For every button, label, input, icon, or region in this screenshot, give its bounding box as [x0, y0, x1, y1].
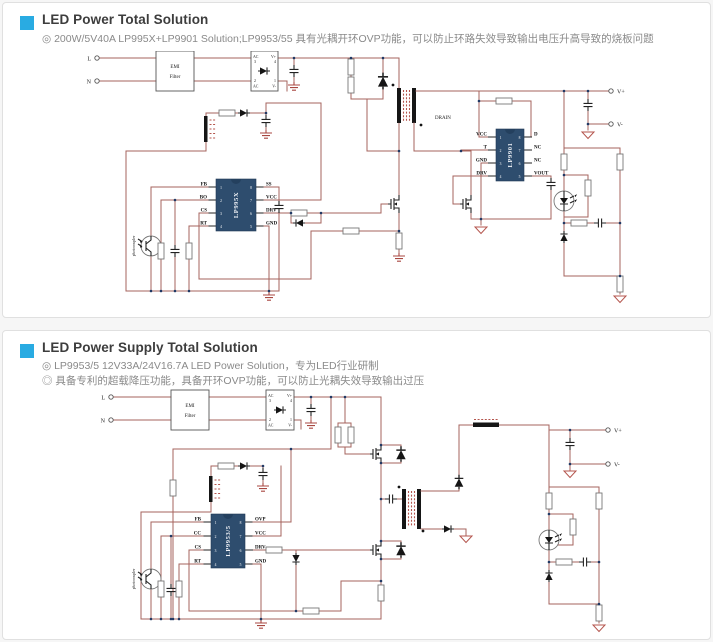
svg-text:4: 4	[500, 175, 502, 179]
svg-text:V-: V-	[288, 424, 292, 428]
svg-text:DRV: DRV	[476, 172, 487, 177]
svg-text:V+: V+	[287, 394, 292, 398]
svg-text:2: 2	[500, 149, 502, 153]
svg-text:2: 2	[215, 535, 217, 539]
p1-primary-network: photocoupler	[126, 103, 405, 300]
svg-text:8: 8	[240, 521, 242, 525]
svg-text:3: 3	[215, 549, 217, 553]
svg-text:1: 1	[220, 186, 222, 190]
svg-text:1: 1	[215, 521, 217, 525]
panel-led-power-supply-total: LED Power Supply Total Solution ◎ LP9953…	[2, 330, 711, 640]
ic-name: LP9953/5	[225, 525, 232, 556]
p1-ic-lp9901: LP9901 1 2 3 4 8 7 6 5 VCC T GND DRV D N…	[476, 129, 549, 181]
section-marker-icon	[20, 344, 34, 358]
svg-text:7: 7	[519, 149, 521, 153]
schematic-led-power-total: L N EMI Filter AC 3 V+ 4 2 AC 1 V-	[11, 51, 708, 313]
svg-text:1: 1	[500, 136, 502, 140]
svg-text:2: 2	[269, 418, 271, 422]
svg-text:V+: V+	[271, 55, 276, 59]
p2-primary-network: photocoupler	[132, 449, 381, 628]
svg-text:6: 6	[250, 212, 252, 216]
vminus-label: V-	[617, 123, 623, 129]
schematic-led-power-supply: L N EMI Filter AC 3 V+ 4 2 AC 1 V-	[11, 389, 708, 633]
panel1-bullet: ◎ 200W/5V40A LP995X+LP9901 Solution;LP99…	[42, 31, 654, 46]
ic-name: LP995X	[233, 192, 240, 218]
bridge-pin-label: AC	[253, 55, 259, 59]
svg-text:EMI: EMI	[185, 404, 195, 409]
svg-text:6: 6	[240, 549, 242, 553]
photocoupler-label: photocoupler	[132, 235, 136, 256]
svg-text:2: 2	[220, 199, 222, 203]
p1-secondary-network: DRAIN V+ V-	[414, 89, 626, 303]
svg-text:NC: NC	[534, 146, 542, 151]
panel2-bullet-1: ◎ LP9953/5 12V33A/24V16.7A LED Power Sol…	[42, 358, 379, 373]
vplus-label: V+	[614, 429, 622, 435]
svg-text:AC: AC	[268, 424, 274, 428]
section-marker-icon	[20, 16, 34, 30]
p1-transformer-snubber	[348, 58, 422, 195]
svg-text:AC: AC	[253, 85, 259, 89]
svg-text:GND: GND	[476, 159, 488, 164]
svg-text:4: 4	[274, 60, 276, 64]
svg-text:NC: NC	[534, 159, 542, 164]
panel1-title: LED Power Total Solution	[42, 12, 208, 27]
vplus-label: V+	[617, 90, 625, 96]
n-terminal-label: N	[101, 419, 106, 425]
svg-text:1: 1	[290, 418, 292, 422]
svg-text:VOUT: VOUT	[534, 172, 549, 177]
panel2-bullet-2: ◎ 具备专利的超载降压功能，具备开环OVP功能，可以防止光耦失效导致输出过压	[42, 373, 424, 388]
svg-text:D: D	[534, 133, 538, 138]
p2-secondary-network: V+ V-	[421, 420, 622, 632]
svg-text:5: 5	[250, 225, 252, 229]
svg-text:8: 8	[519, 136, 521, 140]
svg-text:4: 4	[290, 399, 292, 403]
svg-text:4: 4	[220, 225, 222, 229]
drain-label: DRAIN	[435, 116, 451, 121]
svg-text:VCC: VCC	[476, 133, 487, 138]
svg-text:3: 3	[500, 162, 502, 166]
svg-text:8: 8	[250, 186, 252, 190]
photocoupler-label: photocoupler	[132, 568, 136, 589]
p1-junction-dots	[150, 57, 622, 293]
svg-text:6: 6	[519, 162, 521, 166]
svg-text:1: 1	[274, 79, 276, 83]
svg-text:V-: V-	[272, 85, 276, 89]
panel-led-power-total: LED Power Total Solution ◎ 200W/5V40A LP…	[2, 2, 711, 318]
svg-text:DRV: DRV	[255, 546, 266, 551]
l-terminal-label: L	[87, 57, 91, 63]
svg-text:3: 3	[254, 60, 256, 64]
svg-text:3: 3	[220, 212, 222, 216]
vminus-label: V-	[614, 463, 620, 469]
p2-input-stage: L N EMI Filter AC 3 V+ 4 2 AC 1 V-	[101, 390, 381, 430]
svg-text:5: 5	[240, 563, 242, 567]
svg-text:4: 4	[215, 563, 217, 567]
p2-junction-dots	[150, 396, 601, 621]
n-terminal-label: N	[87, 80, 92, 86]
svg-text:Filter: Filter	[170, 75, 181, 80]
svg-text:3: 3	[269, 399, 271, 403]
svg-text:AC: AC	[268, 394, 274, 398]
svg-text:5: 5	[519, 175, 521, 179]
emi-filter-label: EMI	[170, 65, 180, 70]
ic-name: LP9901	[507, 143, 514, 168]
svg-text:Filter: Filter	[185, 414, 196, 419]
svg-text:2: 2	[254, 79, 256, 83]
svg-text:7: 7	[250, 199, 252, 203]
panel2-title: LED Power Supply Total Solution	[42, 340, 258, 355]
svg-text:7: 7	[240, 535, 242, 539]
l-terminal-label: L	[101, 396, 105, 402]
